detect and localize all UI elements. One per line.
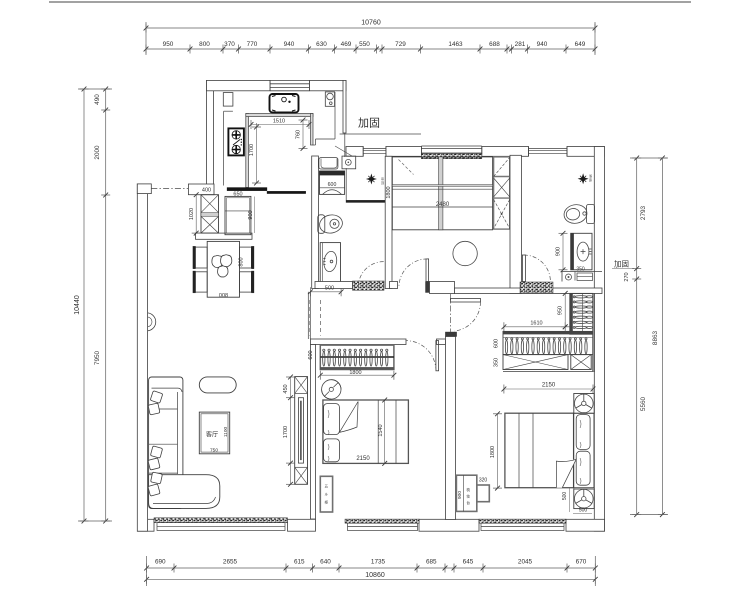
svg-text:10860: 10860 xyxy=(365,572,385,579)
svg-text:615: 615 xyxy=(294,559,305,566)
svg-text:1540: 1540 xyxy=(378,424,384,436)
svg-text:1510: 1510 xyxy=(273,119,285,125)
svg-text:270: 270 xyxy=(624,272,630,281)
svg-text:500: 500 xyxy=(562,492,568,501)
svg-text:柜: 柜 xyxy=(325,500,329,505)
svg-text:370: 370 xyxy=(224,41,235,48)
svg-text:1610: 1610 xyxy=(530,321,542,327)
svg-text:五: 五 xyxy=(325,485,329,489)
svg-text:500: 500 xyxy=(325,286,334,292)
svg-text:400: 400 xyxy=(202,187,211,193)
svg-text:688: 688 xyxy=(489,41,500,48)
svg-text:1700: 1700 xyxy=(283,426,289,438)
svg-text:2480: 2480 xyxy=(436,202,450,208)
svg-text:500: 500 xyxy=(579,507,588,513)
svg-text:1735: 1735 xyxy=(371,559,386,566)
svg-text:1100: 1100 xyxy=(223,427,229,438)
svg-text:281: 281 xyxy=(515,41,526,48)
svg-text:649: 649 xyxy=(575,41,586,48)
svg-text:1700: 1700 xyxy=(249,144,255,156)
svg-text:550: 550 xyxy=(359,41,370,48)
svg-text:690: 690 xyxy=(155,559,166,566)
svg-text:1800: 1800 xyxy=(386,186,392,198)
svg-text:顶: 顶 xyxy=(381,181,384,185)
svg-text:1020: 1020 xyxy=(189,208,195,220)
svg-text:5560: 5560 xyxy=(640,396,647,411)
svg-text:350: 350 xyxy=(576,267,585,273)
svg-text:900: 900 xyxy=(556,247,562,256)
svg-text:8863: 8863 xyxy=(652,330,659,345)
svg-text:940: 940 xyxy=(284,41,295,48)
svg-text:2045: 2045 xyxy=(518,559,533,566)
svg-text:490: 490 xyxy=(94,94,101,105)
svg-text:加固: 加固 xyxy=(358,117,380,130)
svg-text:600: 600 xyxy=(494,339,500,348)
svg-text:640: 640 xyxy=(320,559,331,566)
svg-text:320: 320 xyxy=(479,478,488,484)
svg-text:900: 900 xyxy=(457,491,463,499)
svg-text:670: 670 xyxy=(576,559,587,566)
svg-text:客厅: 客厅 xyxy=(206,431,218,439)
svg-text:630: 630 xyxy=(316,41,327,48)
svg-text:1463: 1463 xyxy=(448,41,463,48)
svg-text:770: 770 xyxy=(247,41,258,48)
svg-text:10760: 10760 xyxy=(361,20,381,27)
svg-text:800: 800 xyxy=(238,257,244,266)
svg-text:斗: 斗 xyxy=(325,492,329,497)
svg-text:梳: 梳 xyxy=(466,487,470,492)
svg-text:2793: 2793 xyxy=(640,205,647,220)
svg-text:645: 645 xyxy=(463,559,474,566)
svg-text:7950: 7950 xyxy=(94,350,101,365)
svg-text:008: 008 xyxy=(219,293,228,299)
svg-text:800: 800 xyxy=(199,41,210,48)
svg-text:1800: 1800 xyxy=(490,446,496,458)
svg-text:600: 600 xyxy=(328,182,337,188)
svg-text:750: 750 xyxy=(210,448,218,454)
svg-text:2655: 2655 xyxy=(223,559,238,566)
svg-text:729: 729 xyxy=(395,41,406,48)
svg-text:霸: 霸 xyxy=(589,177,592,182)
svg-text:900: 900 xyxy=(248,210,254,219)
svg-text:2150: 2150 xyxy=(542,383,556,389)
svg-text:台: 台 xyxy=(466,500,470,505)
svg-text:1800: 1800 xyxy=(349,370,361,376)
svg-text:940: 940 xyxy=(537,41,548,48)
svg-text:10440: 10440 xyxy=(74,295,81,315)
svg-text:950: 950 xyxy=(163,41,174,48)
svg-text:760: 760 xyxy=(296,130,302,139)
svg-text:2000: 2000 xyxy=(94,145,101,160)
svg-text:450: 450 xyxy=(283,384,289,393)
svg-text:2150: 2150 xyxy=(356,456,370,462)
svg-text:加固: 加固 xyxy=(614,259,629,269)
svg-text:600: 600 xyxy=(308,350,314,359)
svg-text:685: 685 xyxy=(426,559,437,566)
svg-text:469: 469 xyxy=(341,41,352,48)
svg-text:950: 950 xyxy=(558,306,564,315)
svg-text:350: 350 xyxy=(494,358,500,367)
svg-text:妆: 妆 xyxy=(466,494,470,499)
